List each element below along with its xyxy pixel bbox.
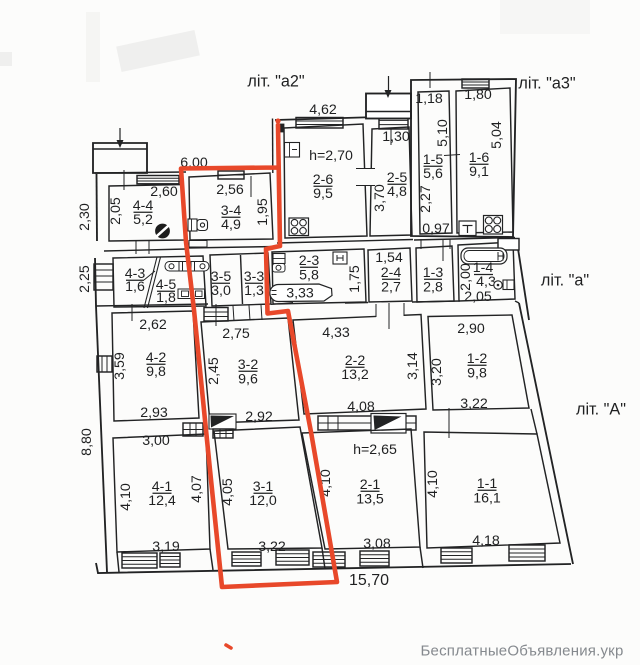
svg-text:1,18: 1,18 [415,91,443,107]
svg-text:4,08: 4,08 [347,399,375,415]
svg-text:4,10: 4,10 [425,470,441,498]
svg-text:3,00: 3,00 [142,433,170,449]
svg-text:2,45: 2,45 [206,357,222,385]
svg-text:h=2,70: h=2,70 [309,148,353,164]
svg-text:2-1: 2-1 [360,477,381,493]
svg-text:2,56: 2,56 [216,182,244,198]
svg-text:літ. "а": літ. "а" [541,271,589,289]
svg-text:9,5: 9,5 [313,186,333,202]
svg-text:4,9: 4,9 [221,217,241,233]
svg-text:2,75: 2,75 [222,326,250,342]
svg-text:4,18: 4,18 [472,533,500,549]
svg-text:літ. "А": літ. "А" [576,400,626,418]
svg-text:1,8: 1,8 [156,290,176,306]
svg-text:БесплатныеОбъявления.укр: БесплатныеОбъявления.укр [421,642,624,659]
svg-text:8,80: 8,80 [79,428,95,456]
svg-text:2,62: 2,62 [139,317,167,333]
svg-text:5,04: 5,04 [489,121,505,149]
svg-text:3,08: 3,08 [363,536,391,552]
svg-text:2,8: 2,8 [423,280,443,296]
svg-text:3,22: 3,22 [460,396,488,412]
svg-text:2-3: 2-3 [299,253,320,269]
svg-text:4,3: 4,3 [476,274,496,290]
svg-text:2,00: 2,00 [458,263,474,291]
svg-text:h=2,65: h=2,65 [353,442,397,458]
svg-text:4,8: 4,8 [387,184,407,200]
svg-text:1-1: 1-1 [477,476,498,492]
svg-text:1,80: 1,80 [464,87,492,103]
svg-text:4,10: 4,10 [118,483,134,511]
svg-text:1,3: 1,3 [244,283,264,299]
svg-text:2,27: 2,27 [418,185,434,213]
svg-text:9,8: 9,8 [467,366,487,382]
svg-text:2,05: 2,05 [464,289,492,305]
svg-text:5,2: 5,2 [133,212,153,228]
svg-text:5,6: 5,6 [423,166,443,182]
svg-text:3-2: 3-2 [238,357,259,373]
svg-text:3,14: 3,14 [405,352,421,380]
svg-text:3,22: 3,22 [258,539,286,555]
svg-text:1-3: 1-3 [423,265,444,281]
svg-text:12,4: 12,4 [148,493,176,509]
svg-text:4,62: 4,62 [309,102,337,118]
svg-text:літ. "а3": літ. "а3" [518,74,575,92]
svg-text:4,33: 4,33 [322,325,350,341]
svg-text:1,6: 1,6 [125,279,145,295]
svg-text:літ. "а2": літ. "а2" [247,72,304,90]
svg-text:2,30: 2,30 [77,203,93,231]
svg-text:13,5: 13,5 [356,492,384,508]
svg-text:5,8: 5,8 [299,268,319,284]
svg-text:0,97: 0,97 [422,221,450,237]
svg-text:16,1: 16,1 [473,491,501,507]
svg-text:1,75: 1,75 [347,265,363,293]
svg-text:1,95: 1,95 [255,198,271,226]
svg-text:2,25: 2,25 [77,265,93,293]
svg-text:2,60: 2,60 [150,184,178,200]
svg-text:2,7: 2,7 [381,280,401,296]
svg-text:9,1: 9,1 [469,164,489,180]
svg-text:3,33: 3,33 [286,285,314,301]
svg-text:1,54: 1,54 [375,250,403,266]
svg-text:9,6: 9,6 [238,372,258,388]
svg-text:3,20: 3,20 [429,358,445,386]
svg-text:2,93: 2,93 [140,405,168,421]
svg-text:2,05: 2,05 [108,197,124,225]
svg-text:2,90: 2,90 [457,321,485,337]
svg-text:13,2: 13,2 [341,367,369,383]
svg-text:4,05: 4,05 [220,478,236,506]
svg-text:5,10: 5,10 [435,119,451,147]
svg-text:3,70: 3,70 [372,184,388,212]
svg-text:15,70: 15,70 [349,572,389,589]
svg-text:3,59: 3,59 [112,352,128,380]
svg-text:1-2: 1-2 [467,351,488,367]
svg-text:12,0: 12,0 [249,493,277,509]
svg-text:9,8: 9,8 [146,364,166,380]
svg-text:2-4: 2-4 [381,265,402,281]
svg-text:2,92: 2,92 [245,409,273,425]
svg-text:1,30: 1,30 [382,129,410,145]
svg-text:3,0: 3,0 [211,283,231,299]
svg-text:4,07: 4,07 [189,475,205,503]
